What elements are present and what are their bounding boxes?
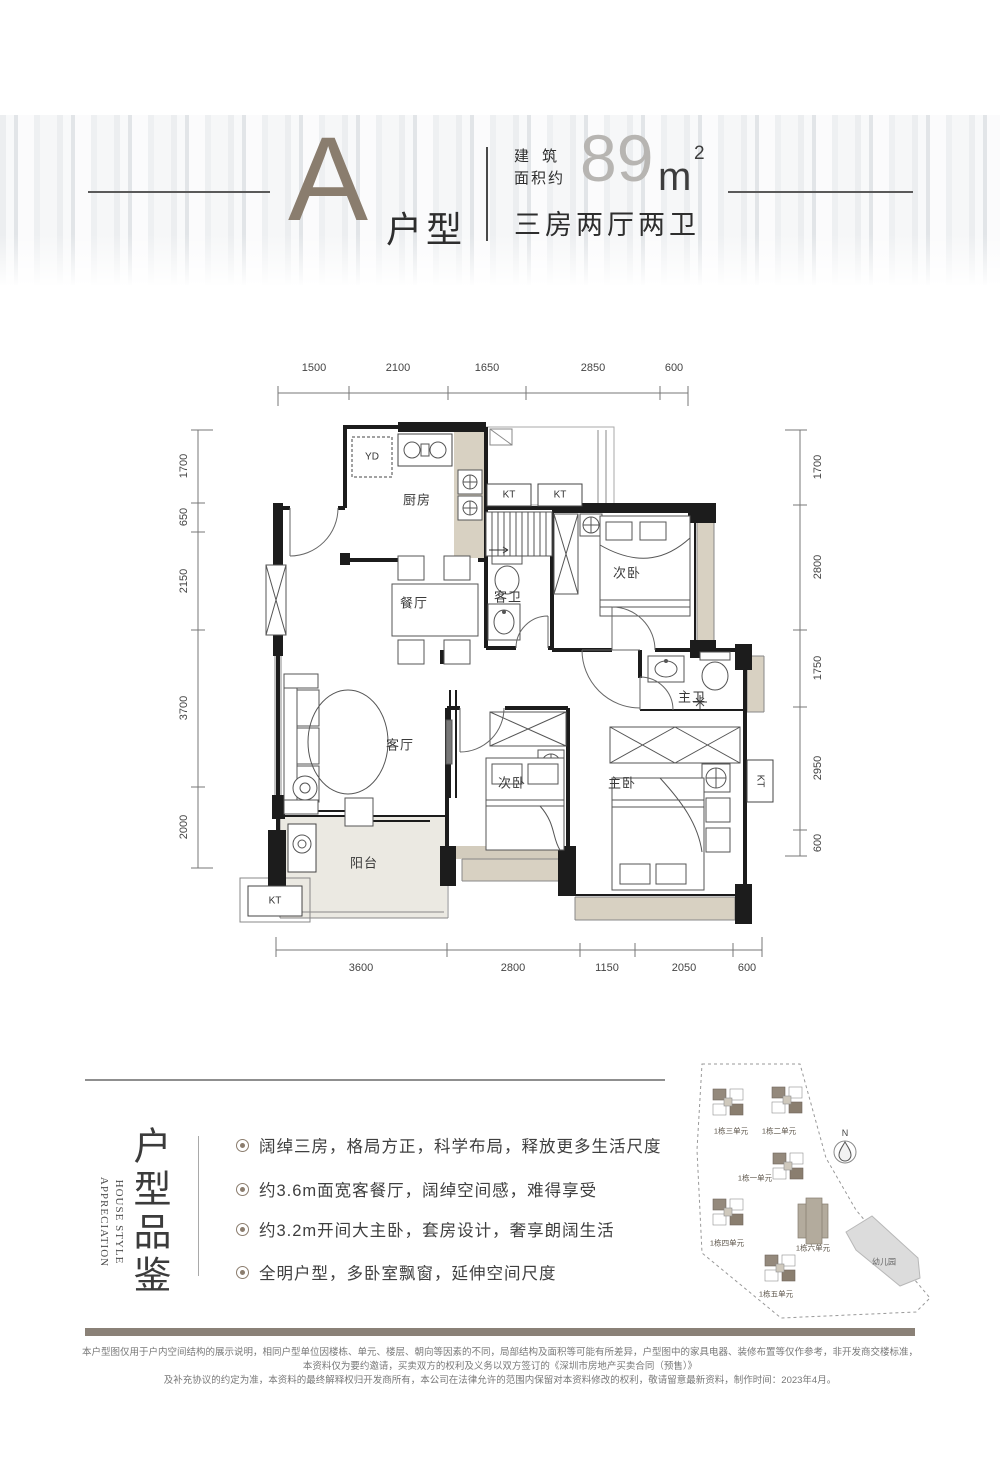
bullet-icon bbox=[236, 1223, 249, 1236]
room-label-living: 客厅 bbox=[386, 735, 414, 754]
dim-bottom-2: 2800 bbox=[501, 962, 525, 974]
kt-label-4: KT bbox=[269, 896, 282, 907]
building-label-1: 1栋一单元 bbox=[738, 1173, 772, 1184]
building-label-3: 1栋三单元 bbox=[714, 1126, 748, 1137]
north-label: N bbox=[842, 1128, 849, 1138]
room-label-master-bath: 主卫 bbox=[678, 687, 706, 706]
bullet-text: 全明户型，多卧室飘窗，延伸空间尺度 bbox=[259, 1260, 557, 1284]
dim-bottom-5: 600 bbox=[738, 962, 756, 974]
kindergarten-label: 幼儿园 bbox=[872, 1257, 896, 1268]
bullet-text: 约3.2m开间大主卧，套房设计，奢享朗阔生活 bbox=[259, 1217, 615, 1241]
room-label-balcony: 阳台 bbox=[350, 853, 378, 872]
disclaimer-line2: 及补充协议的约定为准，本资料的最终解释权归开发商所有，本公司在法律允许的范围内保… bbox=[80, 1374, 920, 1388]
bullet-icon bbox=[236, 1183, 249, 1196]
building-label-5: 1栋五单元 bbox=[759, 1289, 793, 1300]
feature-bullet-1: 阔绰三房，格局方正，科学布局，释放更多生活尺度 bbox=[236, 1133, 662, 1157]
dim-top-3: 1650 bbox=[475, 362, 499, 374]
room-label-bedroom2: 次卧 bbox=[613, 563, 641, 582]
bullet-text: 约3.6m面宽客餐厅，阔绰空间感，难得享受 bbox=[259, 1177, 597, 1201]
building-label-2: 1栋二单元 bbox=[762, 1126, 796, 1137]
kt-label-3: KT bbox=[755, 775, 766, 788]
dim-right-3: 1750 bbox=[812, 656, 824, 680]
disclaimer: 本户型图仅用于户内空间结构的展示说明，相同户型单位因楼栋、单元、楼层、朝向等因素… bbox=[80, 1346, 920, 1388]
features-title-en-line2: APPRECIATION bbox=[96, 1142, 111, 1302]
dim-right-2: 2800 bbox=[812, 555, 824, 579]
room-label-guest-bath: 客卫 bbox=[494, 587, 522, 606]
dim-left-1: 1700 bbox=[178, 454, 190, 478]
kt-label-2: KT bbox=[554, 490, 567, 501]
dim-top-5: 600 bbox=[665, 362, 683, 374]
dim-right-1: 1700 bbox=[812, 455, 824, 479]
floorplan-sheet: A 户型 建筑 面积约 89 m 2 三房两厅两卫 bbox=[0, 0, 1000, 1461]
dim-bottom-1: 3600 bbox=[349, 962, 373, 974]
room-label-dining: 餐厅 bbox=[400, 593, 428, 612]
bullet-icon bbox=[236, 1139, 249, 1152]
feature-bullet-4: 全明户型，多卧室飘窗，延伸空间尺度 bbox=[236, 1260, 557, 1284]
dim-left-5: 2000 bbox=[178, 815, 190, 839]
dim-top-1: 1500 bbox=[302, 362, 326, 374]
feature-bullet-3: 约3.2m开间大主卧，套房设计，奢享朗阔生活 bbox=[236, 1217, 615, 1241]
dim-top-4: 2850 bbox=[581, 362, 605, 374]
dim-right-5: 600 bbox=[812, 834, 824, 852]
dim-left-4: 3700 bbox=[178, 696, 190, 720]
building-label-4: 1栋四单元 bbox=[710, 1238, 744, 1249]
bullet-text: 阔绰三房，格局方正，科学布局，释放更多生活尺度 bbox=[259, 1133, 662, 1157]
siteplan bbox=[697, 1064, 930, 1318]
dim-right-4: 2950 bbox=[812, 756, 824, 780]
room-label-kitchen: 厨房 bbox=[403, 490, 431, 509]
building-label-6: 1栋六单元 bbox=[796, 1243, 830, 1254]
kt-label-1: KT bbox=[503, 490, 516, 501]
room-label-bedroom3: 次卧 bbox=[498, 773, 526, 792]
dim-left-2: 650 bbox=[178, 508, 190, 526]
dim-top-2: 2100 bbox=[386, 362, 410, 374]
bullet-icon bbox=[236, 1266, 249, 1279]
feature-bullet-2: 约3.6m面宽客餐厅，阔绰空间感，难得享受 bbox=[236, 1177, 597, 1201]
footer-bar bbox=[85, 1328, 915, 1336]
dim-left-3: 2150 bbox=[178, 569, 190, 593]
yd-label: YD bbox=[365, 452, 379, 463]
dim-bottom-3: 1150 bbox=[595, 962, 619, 974]
features-vertical-rule bbox=[198, 1136, 199, 1276]
dim-bottom-4: 2050 bbox=[672, 962, 696, 974]
room-label-master: 主卧 bbox=[608, 773, 636, 792]
disclaimer-line1: 本户型图仅用于户内空间结构的展示说明，相同户型单位因楼栋、单元、楼层、朝向等因素… bbox=[80, 1346, 920, 1374]
features-title-cn: 户型品鉴 bbox=[121, 1126, 176, 1298]
features-divider bbox=[85, 1079, 665, 1081]
